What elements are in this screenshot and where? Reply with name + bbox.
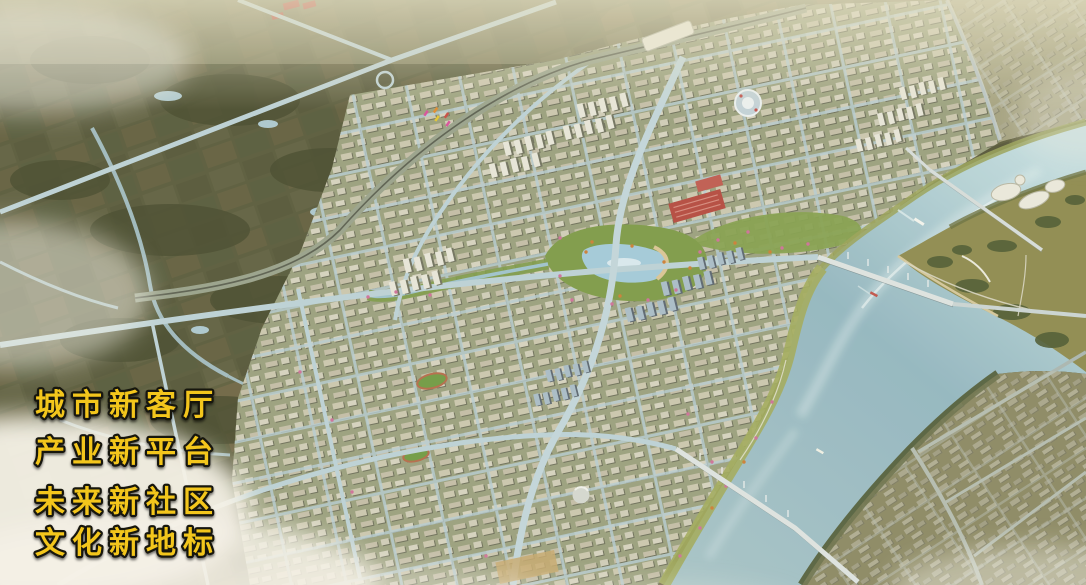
masterplan-rendering: 城市新客厅 产业新平台 未来新社区 文化新地标 (0, 0, 1086, 585)
slogan-line-3: 未来新社区 (35, 486, 220, 519)
slogan-line-1: 城市新客厅 (35, 388, 220, 422)
slogan-line-4: 文化新地标 (35, 526, 220, 560)
slogan-line-2: 产业新平台 (35, 435, 220, 469)
aerial-map: 城市新客厅 产业新平台 未来新社区 文化新地标 (0, 0, 1086, 585)
